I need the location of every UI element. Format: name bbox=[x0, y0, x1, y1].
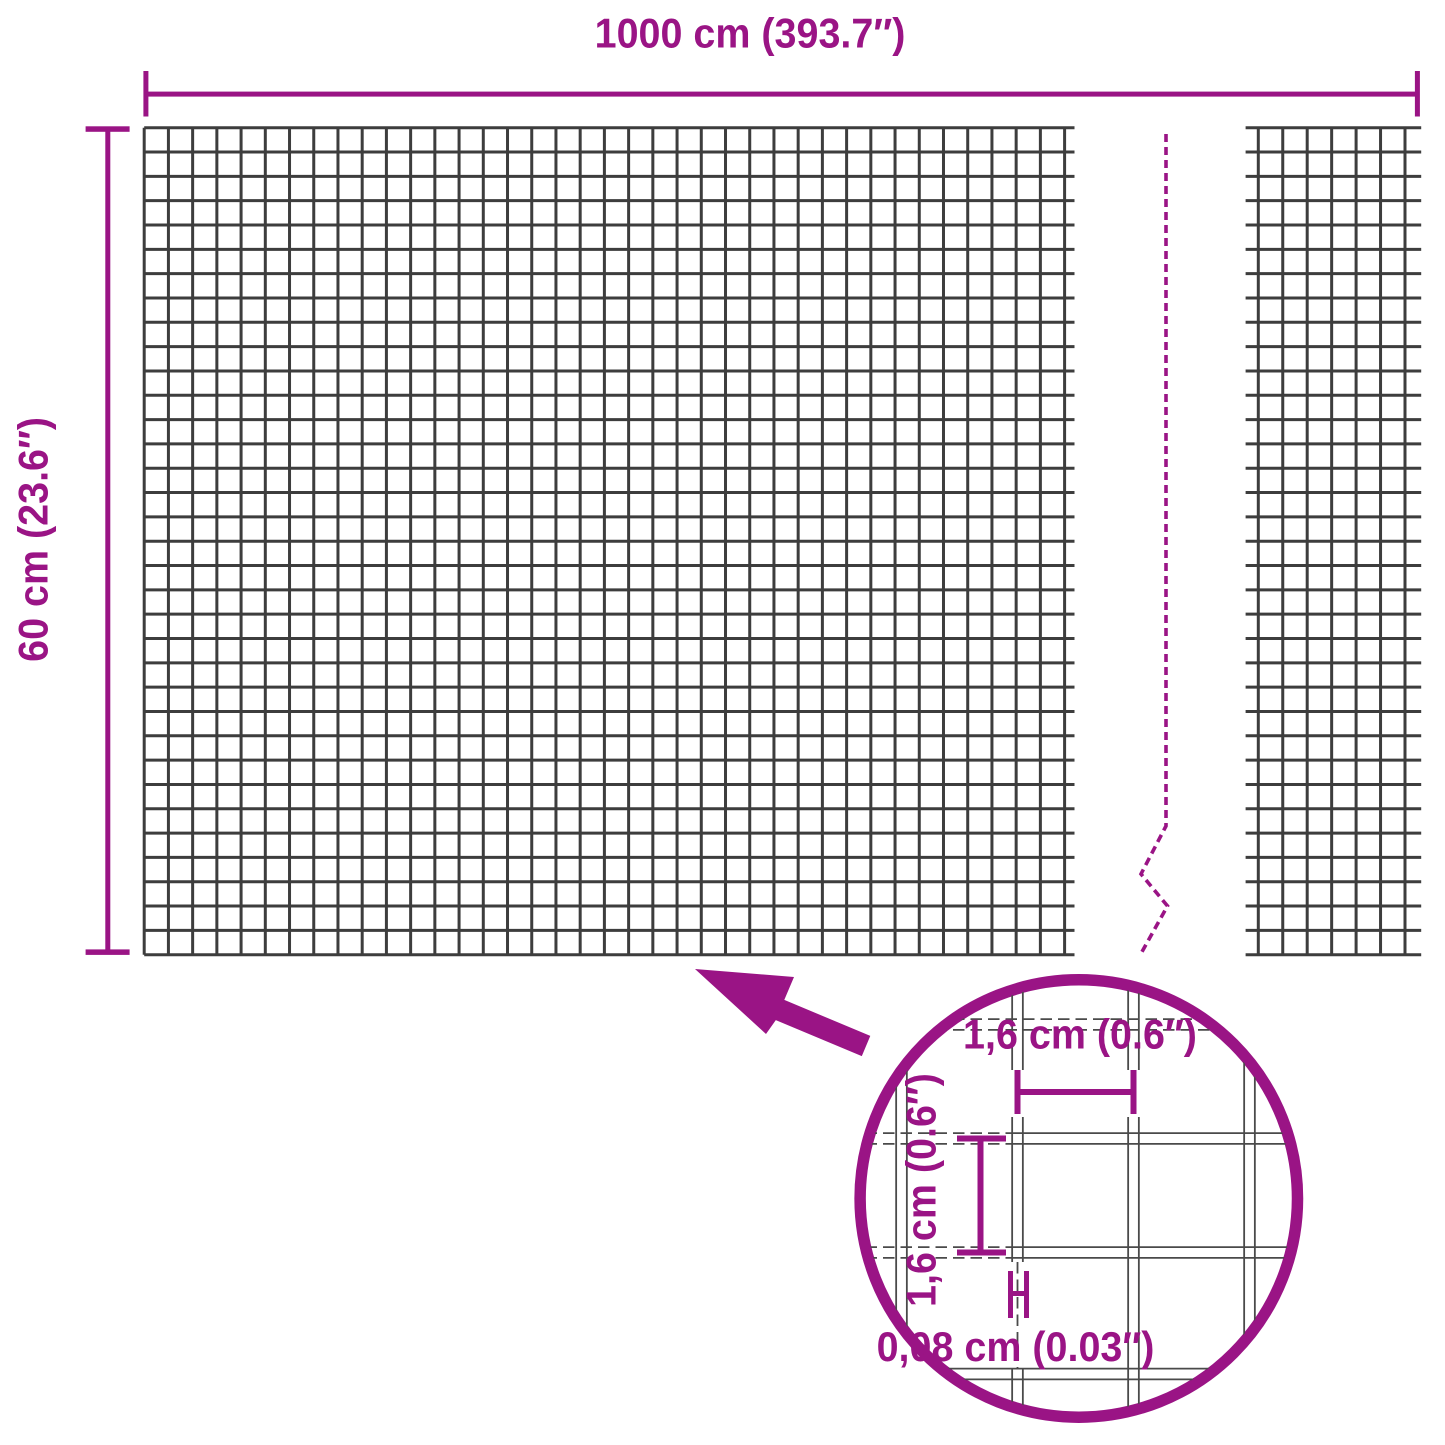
svg-text:60 cm (23.6″): 60 cm (23.6″) bbox=[9, 417, 56, 662]
svg-text:1,6 cm (0.6″): 1,6 cm (0.6″) bbox=[897, 1073, 944, 1307]
svg-text:1000 cm (393.7″): 1000 cm (393.7″) bbox=[595, 9, 906, 56]
svg-text:0,08 cm (0.03″): 0,08 cm (0.03″) bbox=[877, 1323, 1155, 1370]
svg-text:1,6 cm (0.6″): 1,6 cm (0.6″) bbox=[963, 1010, 1197, 1057]
